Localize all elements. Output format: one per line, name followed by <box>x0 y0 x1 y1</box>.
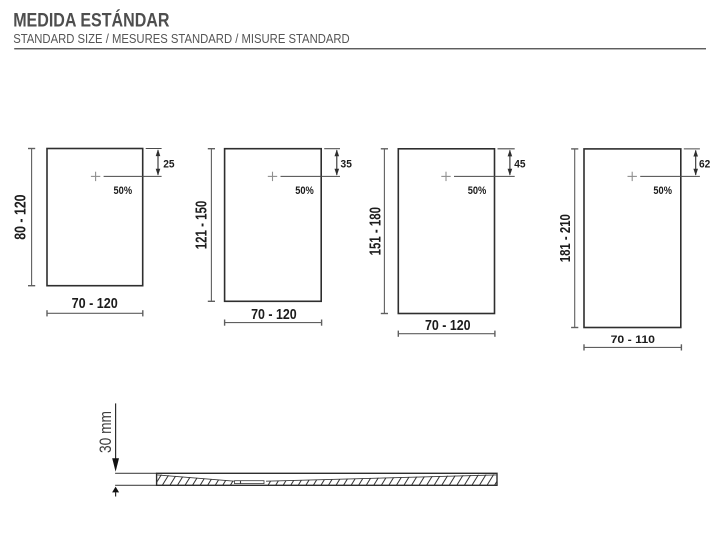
svg-text:70 - 120: 70 - 120 <box>251 307 297 323</box>
svg-text:30 mm: 30 mm <box>96 411 115 453</box>
svg-text:151 - 180: 151 - 180 <box>368 207 385 256</box>
svg-text:35: 35 <box>341 159 352 171</box>
svg-text:25: 25 <box>163 159 174 171</box>
svg-text:50%: 50% <box>468 185 487 197</box>
svg-text:STANDARD SIZE / MESURES STANDA: STANDARD SIZE / MESURES STANDARD / MISUR… <box>13 31 350 46</box>
svg-text:80 - 120: 80 - 120 <box>13 194 30 240</box>
svg-text:70 - 120: 70 - 120 <box>425 318 471 334</box>
svg-text:MEDIDA ESTÁNDAR: MEDIDA ESTÁNDAR <box>13 10 169 32</box>
svg-text:70 - 110: 70 - 110 <box>611 334 655 346</box>
svg-text:181 - 210: 181 - 210 <box>558 214 574 262</box>
svg-text:121 - 150: 121 - 150 <box>194 200 211 249</box>
svg-text:50%: 50% <box>653 185 672 197</box>
svg-text:50%: 50% <box>295 185 314 197</box>
svg-text:62: 62 <box>699 159 710 171</box>
svg-text:45: 45 <box>514 159 525 171</box>
svg-text:70 - 120: 70 - 120 <box>72 296 118 312</box>
svg-text:50%: 50% <box>114 185 133 197</box>
